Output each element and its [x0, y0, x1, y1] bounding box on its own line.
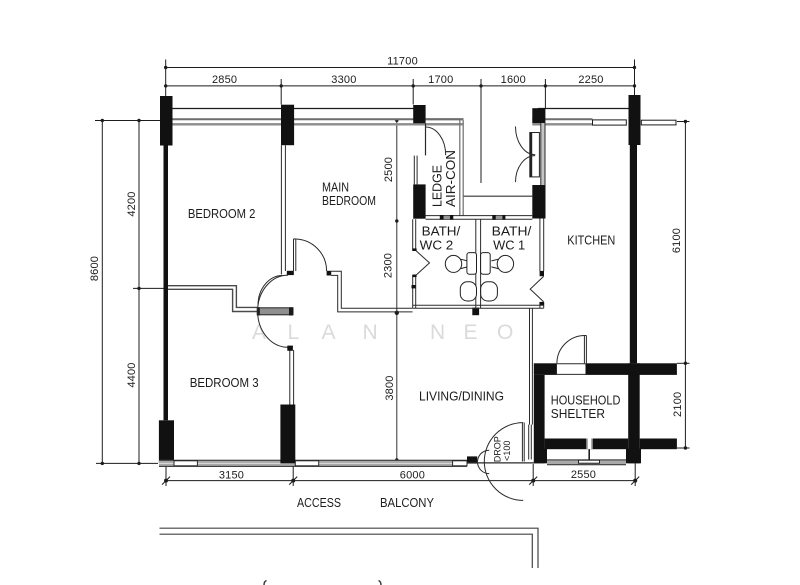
svg-text:8600: 8600 [89, 256, 101, 281]
svg-text:1600: 1600 [501, 74, 526, 86]
svg-text:N: N [430, 321, 445, 344]
svg-text:E: E [464, 321, 478, 344]
svg-text:6100: 6100 [671, 228, 683, 253]
svg-text:BALCONY: BALCONY [380, 495, 434, 510]
svg-text:KITCHEN: KITCHEN [567, 232, 615, 247]
svg-text:AIR-CON: AIR-CON [443, 150, 458, 207]
svg-text:6000: 6000 [400, 470, 425, 482]
svg-text:BEDROOM 3: BEDROOM 3 [190, 375, 259, 390]
svg-text:BATH/: BATH/ [422, 224, 461, 239]
svg-text:SHELTER: SHELTER [551, 406, 605, 421]
svg-text:4200: 4200 [126, 191, 138, 216]
svg-text:BEDROOM 2: BEDROOM 2 [188, 206, 256, 221]
svg-text:2850: 2850 [212, 74, 237, 86]
svg-text:O: O [497, 321, 513, 344]
svg-text:2500: 2500 [383, 157, 395, 182]
svg-text:LIVING/DINING: LIVING/DINING [419, 388, 504, 403]
svg-text:2550: 2550 [571, 469, 596, 481]
svg-text:A: A [322, 321, 336, 344]
svg-text:BEDROOM: BEDROOM [322, 193, 376, 208]
svg-text:<100: <100 [502, 441, 512, 461]
svg-text:11700: 11700 [387, 56, 418, 68]
svg-text:DROP: DROP [493, 436, 503, 462]
svg-text:3150: 3150 [219, 470, 244, 482]
svg-text:4400: 4400 [126, 362, 138, 387]
svg-text:N: N [363, 321, 378, 344]
svg-text:ACCESS: ACCESS [297, 495, 341, 510]
svg-text:BATH/: BATH/ [492, 224, 532, 239]
svg-text:2100: 2100 [672, 392, 684, 417]
svg-text:3800: 3800 [384, 375, 396, 400]
svg-text:WC 2: WC 2 [420, 238, 454, 253]
svg-text:WC 1: WC 1 [493, 238, 525, 253]
svg-text:2300: 2300 [383, 253, 395, 278]
svg-text:3300: 3300 [331, 74, 356, 86]
svg-text:L: L [288, 321, 300, 344]
svg-text:1700: 1700 [428, 74, 453, 86]
svg-text:2250: 2250 [578, 74, 603, 86]
